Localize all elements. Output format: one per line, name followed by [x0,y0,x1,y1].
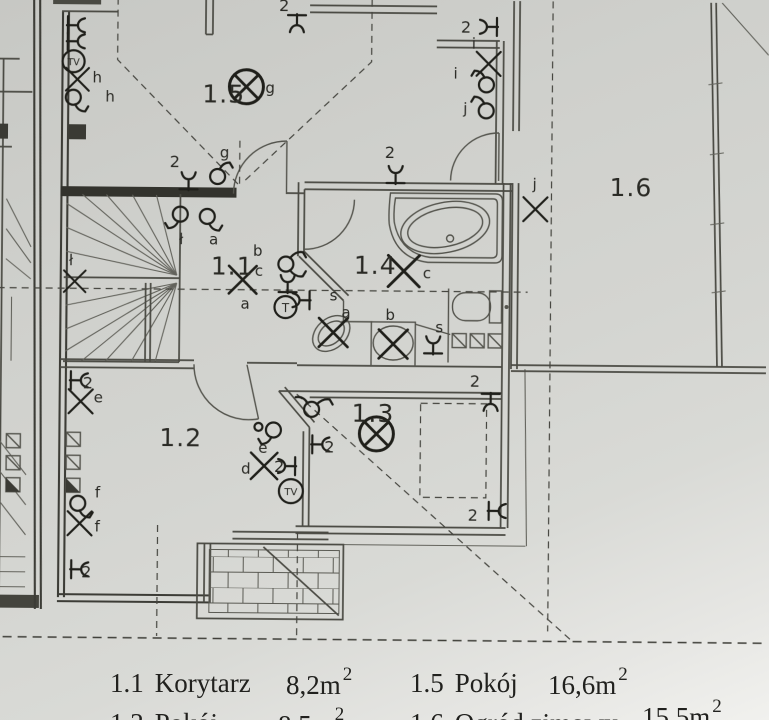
radiator-icon [488,334,502,348]
legend-room-num: 1.5 [410,668,444,698]
room-label-1-3: 1.3 [351,399,394,428]
circuit-label-l: ł [69,251,74,269]
chimney [69,124,86,139]
stair-landing-rail [60,186,236,198]
room-label-1-6: 1.6 [609,173,652,202]
socket-count: 2 [468,506,478,525]
circuit-label-f: f [94,517,100,535]
legend-room-name: Pokój [155,708,218,720]
circuit-label-b: b [385,306,395,324]
double-socket-icon [488,502,506,520]
circuit-label-j: j [462,100,467,118]
socket-count: 2 [274,457,284,476]
legend-room-num: 1.1 [110,668,144,698]
legend-room-num: 1.2 [110,708,144,720]
circuit-label-b: b [253,242,263,260]
circuit-label-g: g [265,79,275,97]
socket-count: 2 [279,0,289,15]
circuit-label-s: s [435,318,443,336]
circuit-label-i: i [472,35,476,53]
circle-socket-icon [165,207,188,229]
circuit-label-j: j [531,175,536,193]
legend-room-name: Korytarz [155,668,251,698]
double-socket-icon [387,166,405,184]
legend-room-name: Pokój [455,668,518,698]
thermostat-label: T [281,301,290,315]
switch-icon [523,197,547,221]
floor-plan-page: 1.5 1.1 1.4 1.2 1.3 1.6 h h g g ł ł a a … [0,0,769,720]
radiator-icon [66,455,80,469]
circuit-label-g: g [220,144,230,162]
radiator-icon [470,334,484,348]
circuit-label-s: s [330,286,338,304]
radiator-icon [6,478,20,492]
bathtub [389,193,503,263]
room-label-1-1: 1.1 [211,251,254,280]
legend-entry-1-1: 1.1Korytarz [110,668,251,699]
socket-count: 2 [470,372,480,391]
double-socket-icon [279,275,297,293]
circle-socket-icon [210,162,233,184]
circle-socket-icon [471,97,494,119]
radiator-icon [66,432,80,446]
circuit-label-l: ł [179,230,184,248]
circuit-label-a: a [341,304,350,322]
socket-count: 2 [170,152,180,171]
legend-area-1-6: 15,5m2 [642,700,720,720]
socket-count: 2 [385,143,395,162]
legend-area-1-1: 8,2m2 [286,668,350,701]
circle-socket-icon [471,71,494,93]
circuit-label-i: i [453,65,457,83]
radiator-icon [66,478,80,492]
circuit-label-e: e [94,388,103,406]
double-socket-icon [480,18,498,36]
circle-socket-icon [278,252,306,277]
switch-icon [69,389,93,413]
terrace [197,543,344,619]
socket-count: 2 [83,373,93,392]
neighbor-unit-lines [0,59,44,608]
legend-area-1-5: 16,6m2 [548,668,626,701]
socket-count: 2 [324,437,334,456]
circuit-label-a: a [209,230,218,248]
circle-socket-icon [254,423,262,431]
room-label-1-5: 1.5 [202,79,245,108]
legend-entry-1-2: 1.2Pokój [110,708,218,720]
switch-icon [67,511,91,535]
circuit-label-h: h [105,88,115,106]
skylight [420,403,487,498]
tv-socket-label: TV [66,57,80,68]
circuit-label-e: e [258,439,267,457]
tv-socket-label: TV [283,487,297,498]
walls [48,0,769,607]
fixtures [5,124,510,621]
legend-area-1-2: 8,5m2 [278,708,342,720]
socket-count: 2 [461,18,471,37]
radiator-icon [6,434,20,448]
circuit-label-d: d [241,460,251,478]
circle-socket-icon [200,209,223,231]
circuit-label-c: c [423,264,431,282]
door-arc-corridor [233,141,286,194]
chimney-neighbor [0,124,8,139]
legend-room-num: 1.6 [410,708,444,720]
room-label-1-4: 1.4 [354,251,397,280]
door-arc-topright [451,133,499,181]
circuit-label-h: h [92,68,102,86]
circuit-label-a: a [240,295,249,313]
double-socket-icon [482,393,500,411]
room-label-1-2: 1.2 [159,423,202,452]
lamp-point-icon [379,330,408,359]
double-socket-icon [288,14,306,32]
legend-entry-1-5: 1.5Pokój [410,668,518,699]
circuit-label-c: c [255,262,263,280]
legend-entry-1-6: 1.6Ogród zimowy [410,708,617,720]
circuit-label-f: f [95,483,101,501]
radiator-icon [452,334,466,348]
double-socket-icon [424,336,442,354]
floor-plan-drawing: 1.5 1.1 1.4 1.2 1.3 1.6 h h g g ł ł a a … [0,0,769,663]
toilet [452,291,508,323]
door-arc-bathroom [304,199,354,249]
legend-room-name: Ogród zimowy [455,708,618,720]
socket-count: 2 [81,562,91,581]
